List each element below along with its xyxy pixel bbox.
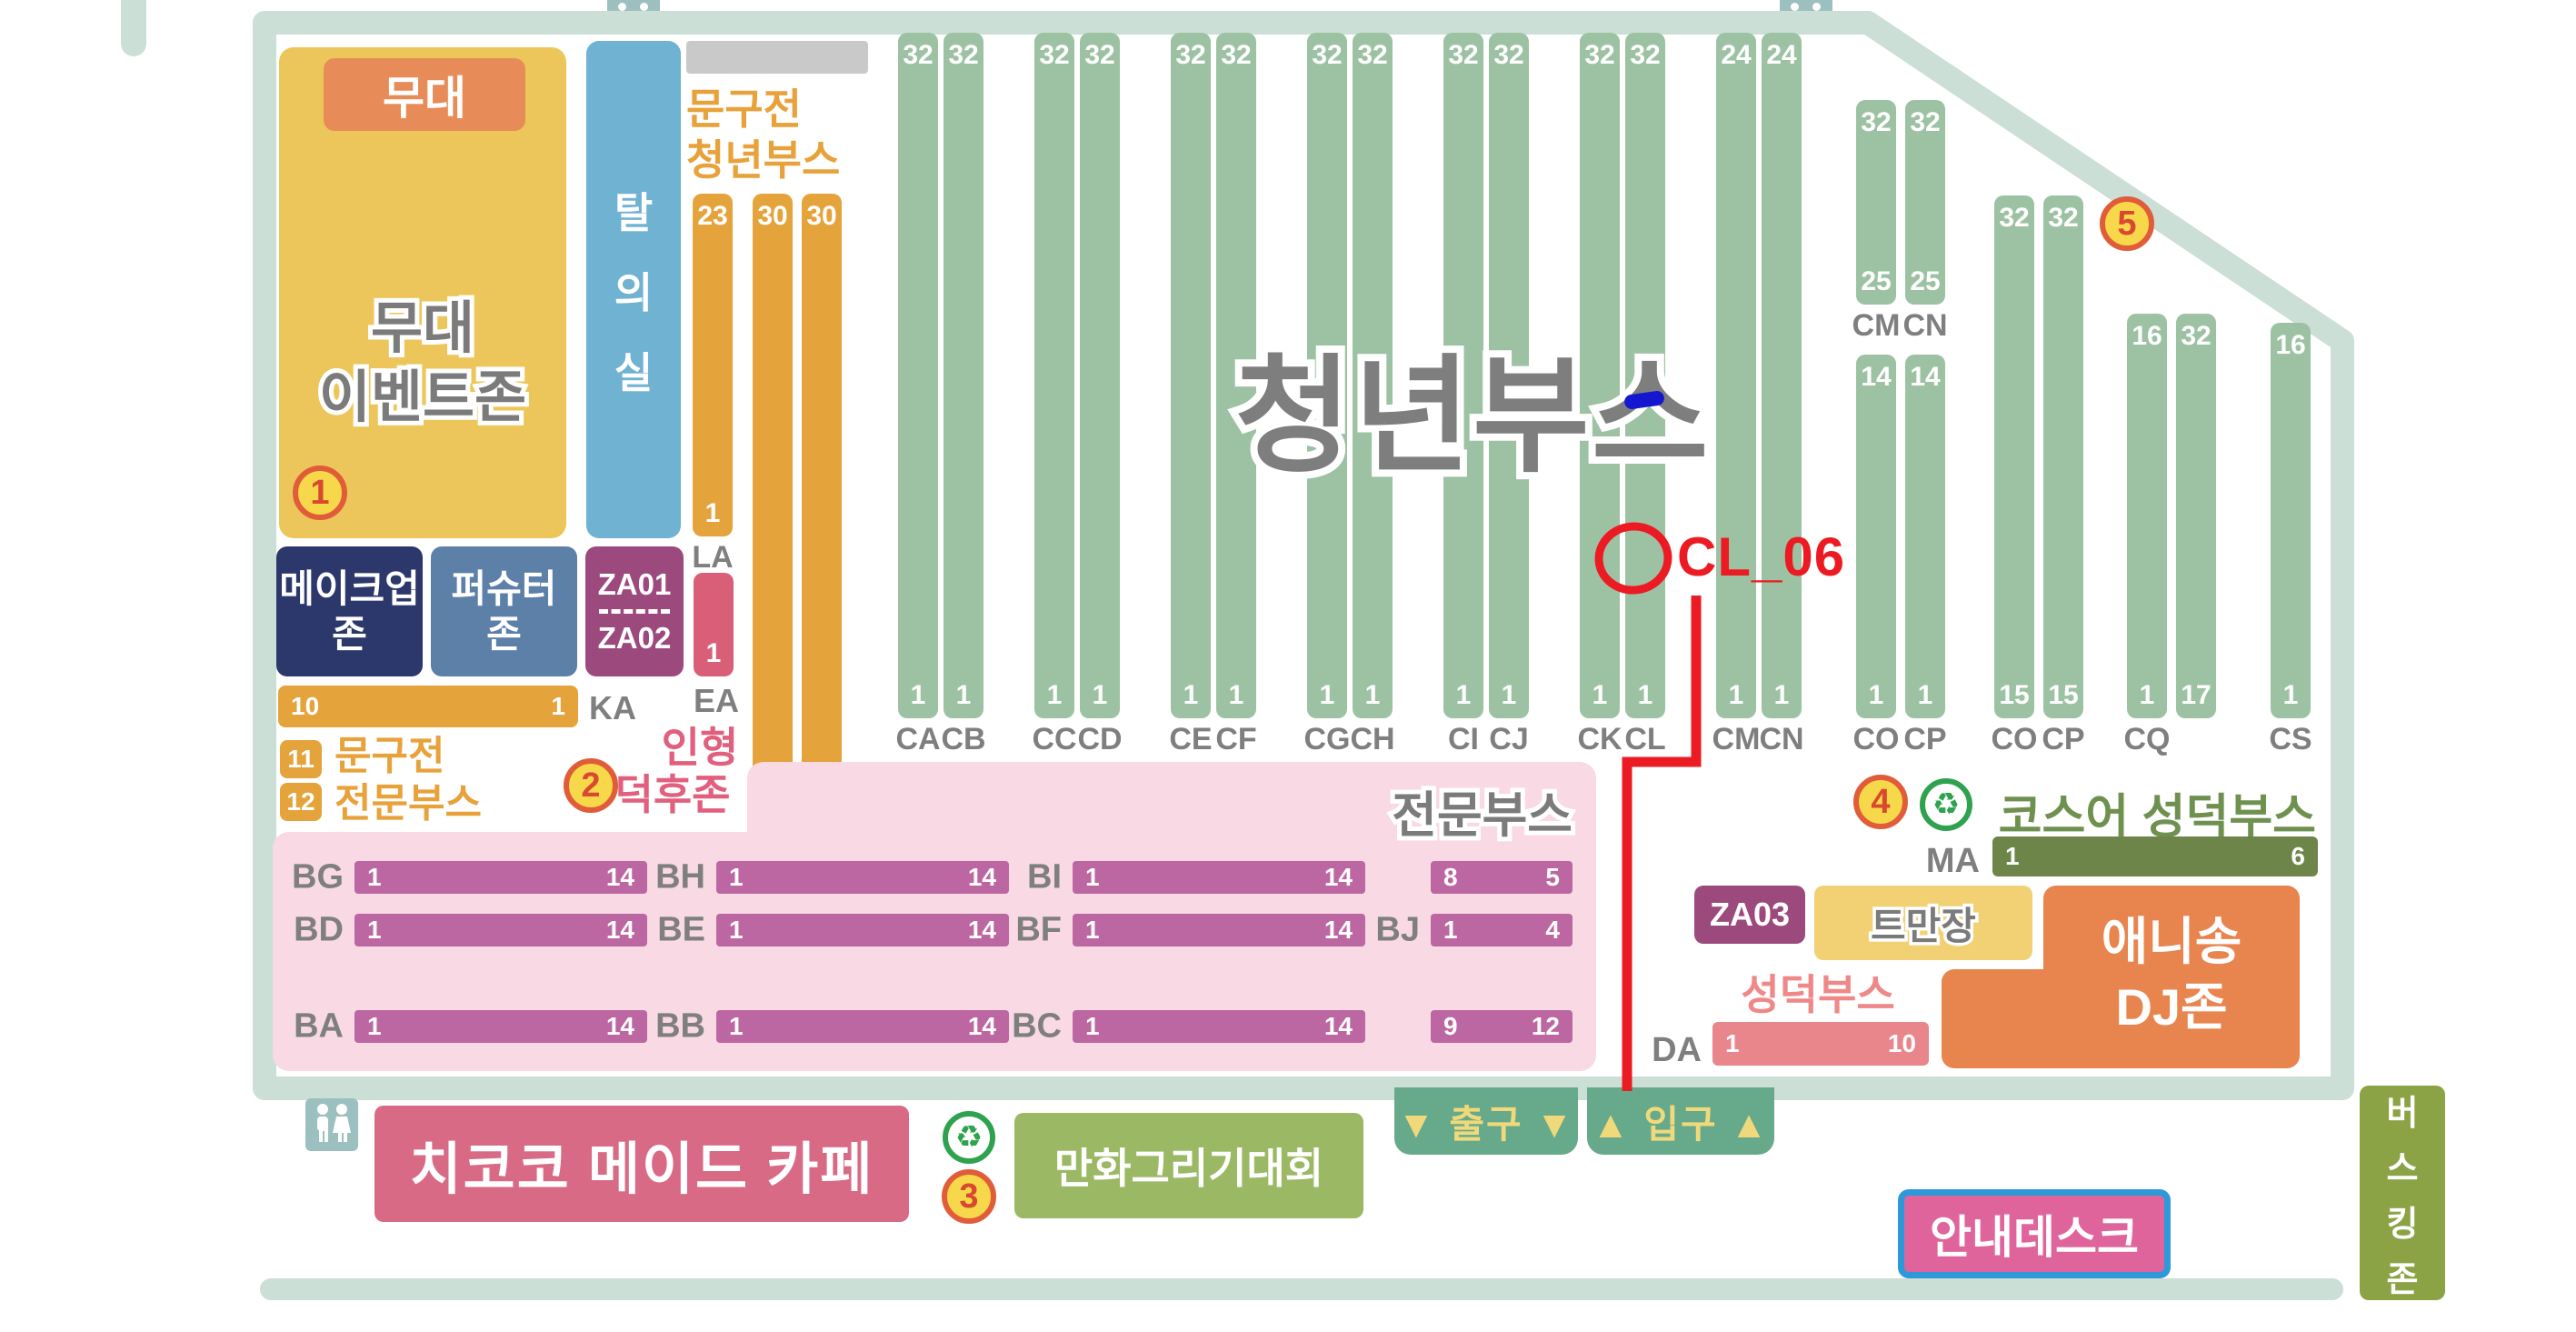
booth-number-bottom: 1 [898,680,938,711]
booth-column-label: CQ [2107,722,2187,757]
maid-cafe-zone[interactable]: 치코코 메이드 카페 [374,1106,909,1222]
booth-number-bottom: 1 [1762,680,1802,711]
booth-number-bottom: 1 [1856,680,1896,711]
booth-number-bottom: 1 [1905,680,1945,711]
fan-booth-title: 성덕부스 [1709,962,1927,1022]
doll-fan-zone-title: 덕후존 [595,762,750,822]
booth-number-bottom: 1 [1625,680,1665,711]
booth-square[interactable]: 12 [280,783,322,821]
booth-row[interactable]: BH 1 14 [716,861,1009,894]
booth-number-bottom: 15 [2043,680,2083,711]
number-badge: 4 [1853,775,1908,829]
makeup-zone[interactable]: 메이크업 존 [276,546,423,676]
stage-event-zone-title: 무대이벤트존 [279,295,566,433]
booth-row-label: BC [1012,1007,1062,1047]
booth-number-bottom: 1 [693,498,733,529]
booth-count-top: 24 [1716,40,1756,71]
booth-number-bottom: 1 [1489,680,1529,711]
booth-row-label: BB [655,1007,705,1047]
top-left-wall-stub [121,0,146,56]
booth-count-top: 30 [753,201,793,232]
booth-column[interactable]: 14 1 CP [1905,355,1945,718]
event-floor-map: 무대 무대이벤트존 탈 의 실 문구전청년부스 23 1 LA 30 1 LB … [0,0,2576,1332]
tmanjang-zone[interactable]: 트만장 [1814,886,2032,960]
booth-row-label-ma: MA [1909,842,1980,881]
stationery-pro-booth-title: 문구전전문부스 [334,733,482,827]
booth-za02-label: ZA02 [598,621,672,656]
restroom-icon [607,0,660,15]
booth-column-label: CN [1885,308,1965,344]
booth-count-top: 32 [2043,203,2083,234]
number-badge: 2 [564,758,618,813]
recycle-glyph: ♻ [1932,786,1960,823]
booth-number-bottom: 1 [944,680,983,711]
booth-row-label: BJ [1375,911,1420,950]
booth-count-top: 32 [898,40,938,71]
booth-column-label: LA [673,540,753,576]
booth-column-label: CJ [1469,722,1549,757]
booth-count-top: 32 [1216,40,1256,71]
booth-row-label: BA [294,1007,344,1047]
stage-event-zone[interactable]: 무대 무대이벤트존 [279,47,566,538]
booth-row[interactable]: BA 1 14 [354,1010,647,1043]
booth-number-bottom: 17 [2176,680,2216,711]
booth-callout-label: CL_06 [1677,526,1845,588]
restroom-icon [1780,0,1832,22]
booth-row-label: BH [655,858,705,897]
booth-column[interactable]: 32 25 CN [1905,100,1945,305]
booth-column[interactable]: 30 1 LC [802,194,842,801]
booth-column[interactable]: 32 1 CA [898,33,938,718]
booth-count-top: 32 [1489,40,1529,71]
booth-number-bottom: 1 [1171,680,1211,711]
booth-number-bottom: 1 [1307,680,1347,711]
booth-row[interactable]: BG 1 14 [354,861,647,894]
recycle-icon: ♻ [943,1111,995,1164]
booth-row-label: BE [657,911,705,950]
booth-column-label: CP [1885,722,1965,757]
booth-count-top: 23 [693,201,733,232]
youth-booth-area-title: 청년부스 [1063,314,1882,497]
booth-column-label: CL [1605,722,1685,757]
bottom-walkway-strip [260,1278,2343,1300]
booth-count-top: 24 [1762,40,1802,71]
booth-count-top: 32 [944,40,983,71]
booth-row-label: BF [1015,911,1062,950]
stage-header: 무대 [324,58,525,131]
restroom-icon [305,1098,358,1151]
booth-count-top: 30 [802,201,842,232]
stage-label: 무대 [383,62,466,127]
booth-column-ea[interactable]: 1 [694,573,734,676]
booth-count-top: 32 [2176,321,2216,352]
comic-drawing-contest-zone[interactable]: 만화그리기대회 [1014,1113,1363,1218]
booth-row[interactable]: BC 1 14 [1073,1010,1365,1043]
changing-room[interactable]: 탈 의 실 [586,41,681,538]
info-desk[interactable]: 안내데스크 [1898,1189,2171,1278]
entrance-gate-button[interactable]: ▲ 입구 ▲ [1587,1087,1774,1155]
stationery-youth-booth-title: 문구전청년부스 [686,84,923,185]
booth-row[interactable]: BD 1 14 [354,914,647,946]
number-badge: 5 [2100,196,2154,251]
booth-row[interactable]: 9 12 [1431,1010,1573,1043]
anisong-dj-zone-title: 애니송DJ존 [2043,909,2300,1040]
booth-column-label: CN [1742,722,1822,757]
booth-column[interactable]: 32 15 CP [2043,195,2083,718]
number-badge: 1 [293,466,347,520]
changing-room-label: 탈 [614,180,653,240]
booth-column[interactable]: 16 1 CQ [2127,314,2167,718]
booth-count-top: 16 [2127,321,2167,352]
booth-column[interactable]: 16 1 CS [2271,323,2311,718]
booth-row-ka[interactable]: 10 1 [278,686,578,727]
booth-row[interactable]: 8 5 [1431,861,1573,894]
booth-row-ma[interactable]: 1 6 [1992,836,2318,876]
booth-column-label: CH [1333,722,1413,757]
booth-number-bottom: 1 [1216,680,1256,711]
booth-square[interactable]: 11 [280,740,322,778]
booth-number-bottom: 1 [1353,680,1393,711]
booth-column[interactable]: 32 15 CO [1994,195,2034,718]
booth-za01-za02[interactable]: ZA01 ZA02 [585,546,684,676]
booth-count-top: 32 [1353,40,1393,71]
booth-number-bottom: 1 [1080,680,1120,711]
booth-count-top: 14 [1905,362,1945,393]
booth-count-top: 32 [1580,40,1620,71]
number-badge: 3 [942,1169,996,1224]
booth-za01-label: ZA01 [598,567,672,602]
booth-column[interactable]: 32 25 CM [1856,100,1896,305]
booth-number-bottom: 1 [1580,680,1620,711]
booth-count-top: 32 [1080,40,1120,71]
divider [599,609,670,614]
busking-zone[interactable]: 버 스 킹 존 [2360,1086,2445,1300]
booth-count-top: 32 [1443,40,1483,71]
booth-number-bottom: 1 [2271,680,2311,711]
booth-row[interactable]: BF 1 14 [1073,914,1365,946]
booth-column[interactable]: 30 1 LB [753,194,793,801]
booth-column-label: CD [1060,722,1140,757]
booth-column[interactable]: 23 1 LA [693,194,733,536]
booth-row[interactable]: BJ 1 4 [1431,914,1573,946]
booth-number-bottom: 15 [1994,680,2034,711]
booth-za03[interactable]: ZA03 [1694,886,1805,944]
anisong-dj-zone [1942,969,2060,1068]
booth-row[interactable]: BE 1 14 [716,914,1009,946]
booth-row-label-da: DA [1634,1031,1702,1070]
booth-count-top: 32 [1307,40,1347,71]
booth-count-top: 16 [2271,330,2311,361]
booth-column-label: CS [2251,722,2331,757]
booth-count-top: 32 [1856,107,1896,138]
booth-column-label: CB [924,722,1003,757]
booth-row[interactable]: BI 1 14 [1073,861,1365,894]
booth-row-label-ka: KA [589,689,636,727]
exit-gate-button[interactable]: ▼ 출구 ▼ [1394,1087,1578,1155]
booth-row-label: BI [1027,858,1062,897]
booth-number-bottom: 25 [1856,266,1896,297]
recycle-icon: ♻ [1920,778,1972,831]
booth-number-bottom: 1 [2127,680,2167,711]
booth-number-bottom: 1 [1443,680,1483,711]
booth-count-top: 32 [1994,203,2034,234]
booth-number-bottom: 25 [1905,266,1945,297]
booth-count-top: 32 [1625,40,1665,71]
booth-count-top: 32 [1034,40,1074,71]
booth-column-label: CF [1196,722,1276,757]
booth-count-top: 32 [1171,40,1211,71]
gray-divider-bar [686,41,868,74]
booth-row-label: BD [294,911,344,950]
booth-number-bottom: 1 [1716,680,1756,711]
pursuer-zone[interactable]: 퍼슈터 존 [431,546,577,676]
booth-number-bottom: 1 [1034,680,1074,711]
booth-column[interactable]: 32 17 [2176,314,2216,718]
booth-row[interactable]: BB 1 14 [716,1010,1009,1043]
booth-row-da[interactable]: 1 10 [1712,1022,1929,1066]
booth-count-top: 32 [1905,107,1945,138]
booth-row-label: BG [292,858,344,897]
booth-column[interactable]: 32 1 CB [944,33,983,718]
recycle-glyph: ♻ [955,1119,983,1156]
booth-column-label: CP [2023,722,2103,757]
pro-booth-title: 전문부스 [1254,775,1573,846]
